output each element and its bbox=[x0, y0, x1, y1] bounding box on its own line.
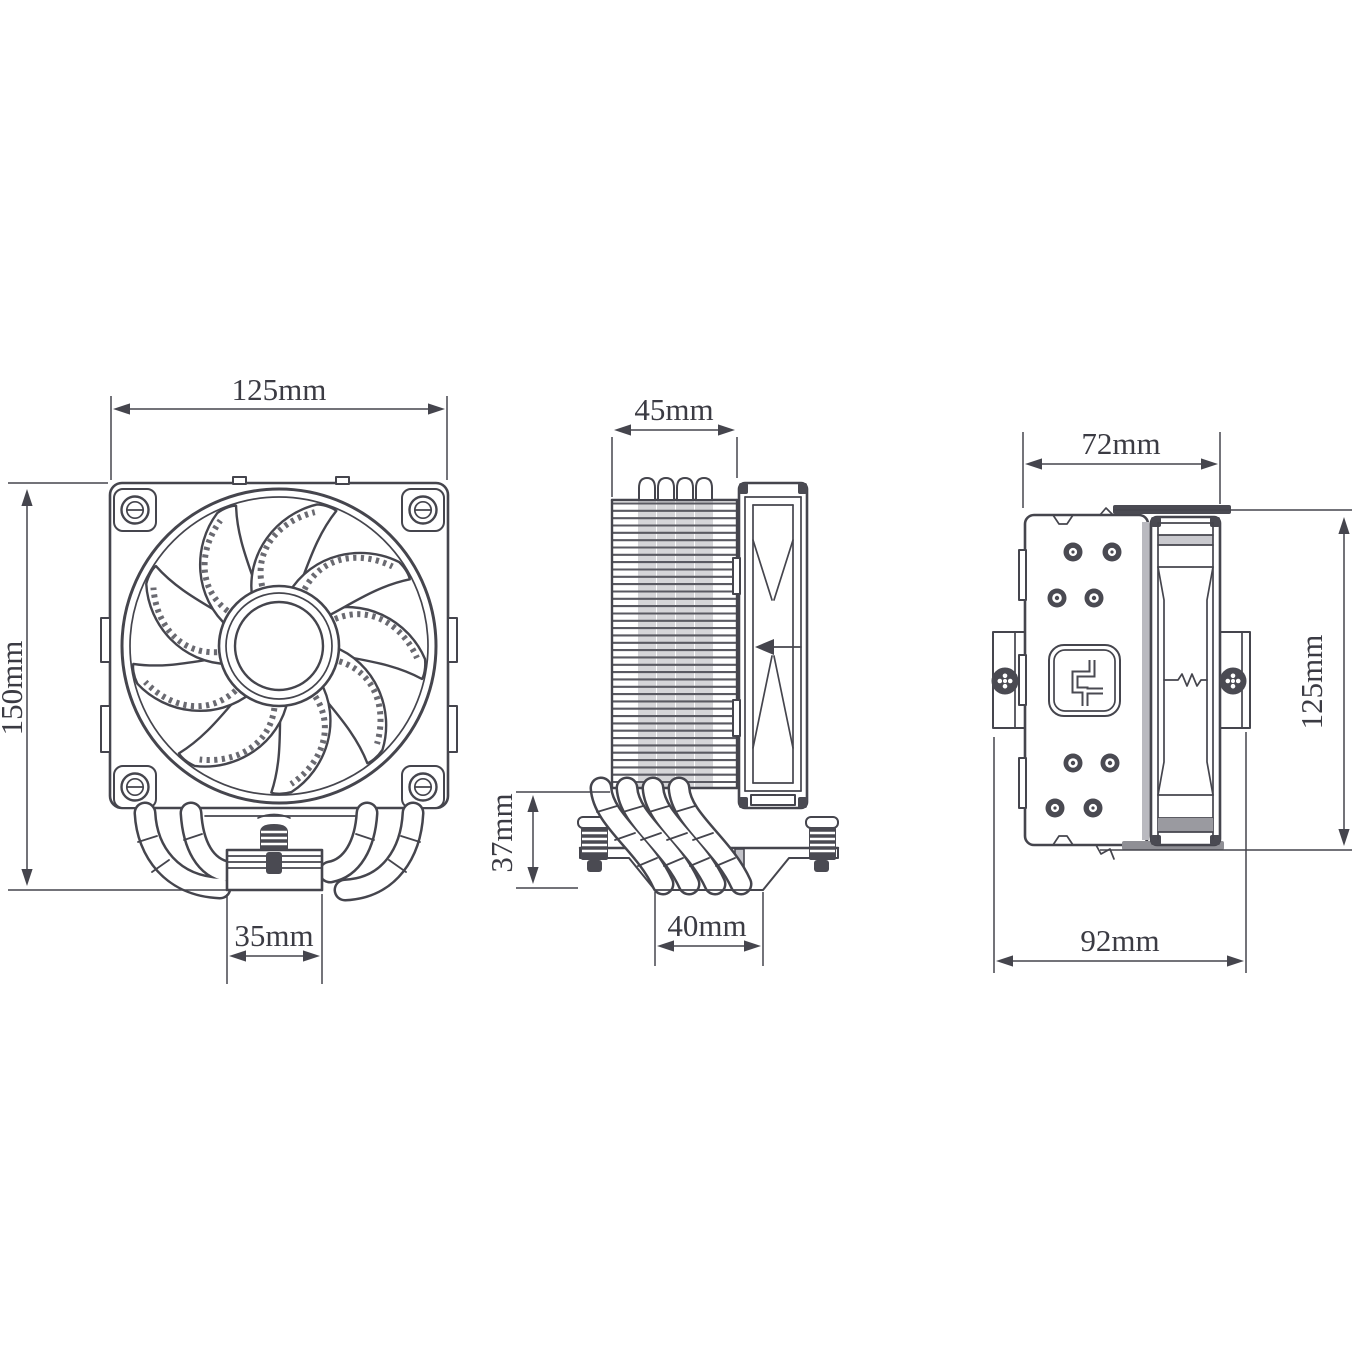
corner-screw bbox=[114, 766, 156, 808]
base-spring-screw bbox=[258, 815, 290, 851]
rear-view bbox=[992, 505, 1251, 859]
fan-hub bbox=[219, 586, 339, 706]
front-base-label: 35mm bbox=[234, 918, 313, 953]
technical-drawing-page: 125mm 150mm 35mm 45mm 37mm 40mm 72mm 125… bbox=[0, 0, 1360, 1360]
front-view bbox=[101, 477, 457, 890]
rear-fan bbox=[1151, 517, 1220, 845]
drawing-canvas: 125mm 150mm 35mm 45mm 37mm 40mm 72mm 125… bbox=[0, 0, 1360, 1360]
side-depth-label: 45mm bbox=[634, 392, 713, 427]
heatpipe-columns bbox=[638, 501, 713, 787]
mounting-base bbox=[227, 850, 322, 890]
corner-screw bbox=[114, 489, 156, 531]
spring-screw-right bbox=[806, 817, 838, 872]
side-view bbox=[578, 478, 838, 890]
bracket-screw-right bbox=[1220, 668, 1247, 695]
rear-height-label: 125mm bbox=[1294, 635, 1329, 730]
side-base-height-label: 37mm bbox=[484, 793, 519, 872]
bracket-screw-left bbox=[992, 668, 1019, 695]
heatpipe-caps bbox=[639, 478, 712, 500]
frame-top-tab bbox=[336, 477, 349, 484]
base-bolt bbox=[266, 852, 282, 874]
rear-width-label: 72mm bbox=[1081, 426, 1160, 461]
body-fan-gap bbox=[1142, 522, 1149, 840]
dim-front-width bbox=[111, 396, 447, 480]
fan-clip bbox=[733, 700, 740, 736]
brand-logo bbox=[1049, 645, 1120, 716]
fan-clip bbox=[733, 558, 740, 594]
corner-screw bbox=[402, 766, 444, 808]
rear-base-label: 92mm bbox=[1080, 923, 1159, 958]
frame-top-tab bbox=[233, 477, 246, 484]
corner-screw bbox=[402, 489, 444, 531]
side-fan-profile bbox=[733, 483, 807, 808]
side-base-width-label: 40mm bbox=[667, 908, 746, 943]
front-height-label: 150mm bbox=[0, 641, 29, 736]
front-width-label: 125mm bbox=[232, 372, 327, 407]
